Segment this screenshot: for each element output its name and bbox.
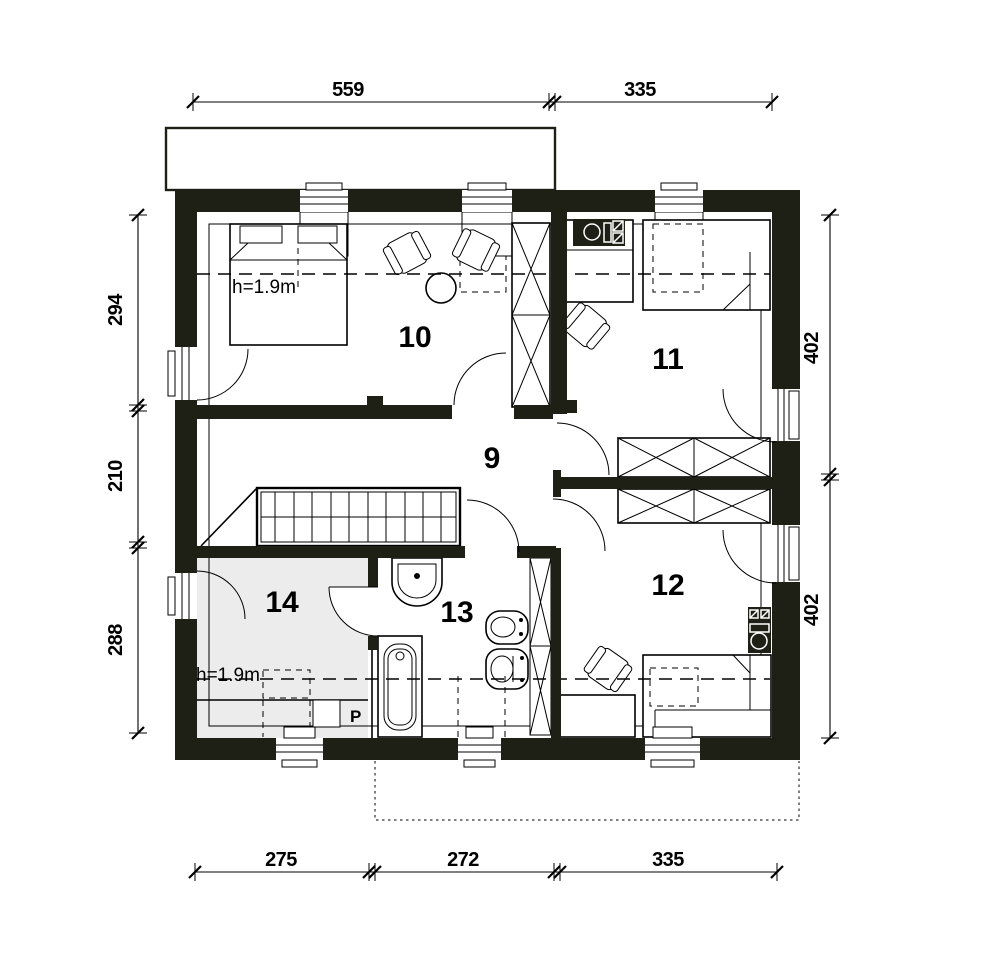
dim-left-1: 294 <box>105 293 127 326</box>
washing-machine-label: P <box>350 707 361 726</box>
dimension-left: 294 210 288 <box>105 209 147 739</box>
bed-room12 <box>643 655 771 737</box>
window <box>300 183 348 212</box>
dim-bottom-1: 275 <box>265 849 297 871</box>
desk-room11 <box>558 219 633 302</box>
ceiling-height-label-top: h=1.9m <box>232 277 296 298</box>
room-label-14: 14 <box>265 586 299 619</box>
washing-machine <box>313 700 340 727</box>
dim-bottom-3: 335 <box>652 849 684 871</box>
window <box>458 727 501 767</box>
dim-right-2: 402 <box>801 594 823 626</box>
room-label-10: 10 <box>398 321 431 354</box>
washbasin <box>392 558 442 606</box>
dim-right-1: 402 <box>801 332 823 364</box>
balcony-door-arc-room11 <box>723 389 776 442</box>
toilet <box>486 649 528 689</box>
window <box>655 183 703 212</box>
balcony-door-window <box>168 573 197 619</box>
dimension-top: 559 335 <box>187 79 778 111</box>
roof-outline <box>166 128 555 190</box>
door-arc-room12 <box>553 499 605 551</box>
bathtub <box>378 636 422 737</box>
bed-room11 <box>643 220 770 310</box>
armchair <box>560 300 612 352</box>
room14-floor <box>197 558 368 738</box>
room-label-13: 13 <box>440 596 473 629</box>
wardrobe-room11 <box>618 438 770 477</box>
dim-left-3: 288 <box>105 624 127 656</box>
dim-bottom-2: 272 <box>447 849 479 871</box>
door-arc-room13 <box>467 500 519 552</box>
balcony-door-window <box>772 525 800 582</box>
window <box>462 183 512 212</box>
door-arc-room10 <box>454 353 506 405</box>
balcony-door-window <box>168 347 197 400</box>
balcony-door-arc-room12 <box>723 530 776 583</box>
equipment-room12 <box>748 607 771 653</box>
lower-storey-dotted-outline <box>375 761 799 820</box>
duct-shaft <box>530 558 551 735</box>
armchair <box>451 226 502 274</box>
bidet <box>486 611 528 644</box>
room-label-9: 9 <box>484 442 501 475</box>
dim-top-2: 335 <box>624 79 656 101</box>
round-table <box>426 273 456 303</box>
staircase <box>201 488 460 546</box>
floor-plan-drawing: 559 335 275 272 335 294 210 288 402 402 … <box>0 0 1000 964</box>
dim-left-2: 210 <box>105 460 127 492</box>
balcony-door-window <box>772 389 800 441</box>
balcony-door-arc-room10 <box>197 349 248 400</box>
armchair <box>381 229 432 278</box>
dimension-bottom: 275 272 335 <box>189 849 783 881</box>
floor-plan: 559 335 275 272 335 294 210 288 402 402 … <box>0 0 1000 964</box>
ceiling-height-label-bottom: h=1.9m <box>196 665 260 686</box>
room-label-11: 11 <box>652 343 684 376</box>
wardrobe-room12 <box>618 489 770 523</box>
desk-room12 <box>558 695 635 737</box>
window <box>645 727 700 767</box>
door-arc-room11 <box>557 423 609 475</box>
room-label-12: 12 <box>651 569 684 602</box>
dim-top-1: 559 <box>332 79 364 101</box>
wardrobe-room10 <box>512 223 550 407</box>
dimension-right: 402 402 <box>801 209 839 744</box>
armchair <box>582 644 634 695</box>
